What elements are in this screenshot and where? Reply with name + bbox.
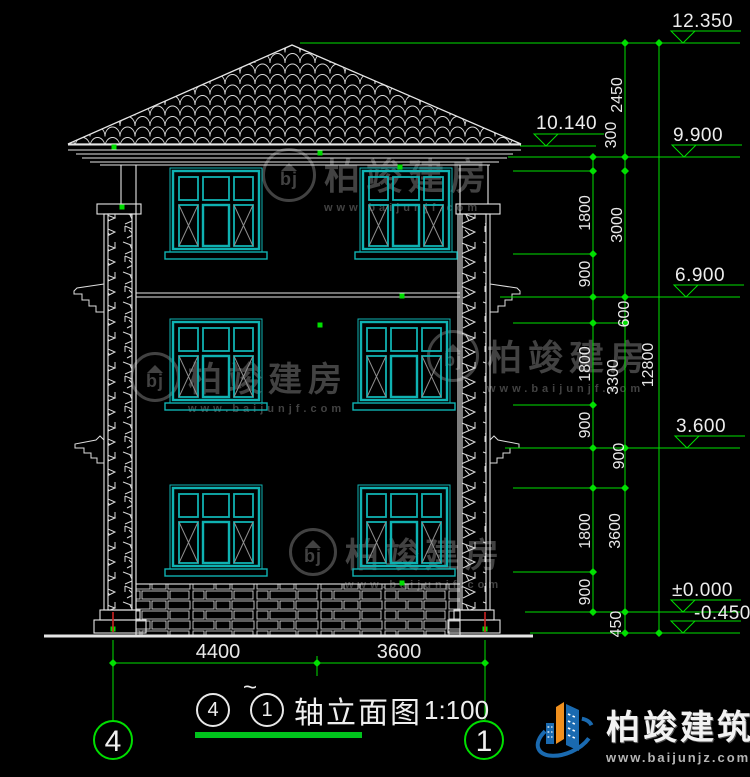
window-sill <box>165 569 267 576</box>
elevation-marker-icon <box>674 285 744 297</box>
grip-point <box>318 323 323 328</box>
elevation-label-ground: ±0.000 <box>672 580 733 601</box>
dim-label-bay-right: 3600 <box>377 641 422 663</box>
drawing-title: 4 ~ 1 轴立面图 1:100 <box>196 688 489 732</box>
dim-labels-mid-chain: 2450 300 3000 600 3300 900 3600 450 <box>603 77 633 637</box>
dim-label: 3300 <box>605 359 622 395</box>
elevation-marker-icon <box>534 134 604 146</box>
dim-label: 900 <box>577 261 594 288</box>
grip-point <box>398 165 403 170</box>
hip-roof <box>60 40 530 165</box>
window <box>165 319 267 410</box>
window-sill <box>353 403 455 410</box>
elevation-label-eave-top: 10.140 <box>536 113 597 134</box>
window-sill <box>165 252 267 259</box>
pilaster-base <box>100 610 140 620</box>
capital <box>97 204 141 214</box>
elevation-marker-icon <box>671 31 741 43</box>
eave-cornice <box>68 145 521 165</box>
dim-label: 2450 <box>609 77 626 113</box>
dim-label: 450 <box>608 611 625 638</box>
title-underline <box>195 732 362 738</box>
dim-label: 300 <box>603 122 620 149</box>
dim-label: 1800 <box>577 195 594 231</box>
grip-point <box>400 294 405 299</box>
window-sill <box>355 252 457 259</box>
pilaster-ornament <box>108 214 132 610</box>
dim-label: 900 <box>611 443 628 470</box>
right-pilaster <box>448 165 500 633</box>
grip-point <box>400 581 405 586</box>
elevation-label-site: -0.450 <box>694 603 750 624</box>
cad-elevation-drawing: bj 柏竣建房 www.baijunjf.com bj 柏竣建房 www.bai… <box>0 0 750 777</box>
dim-label: 1800 <box>577 346 594 382</box>
stone-base <box>136 584 460 636</box>
window-sill <box>353 569 455 576</box>
dim-label: 600 <box>616 301 633 328</box>
window <box>165 485 267 576</box>
dim-label: 3000 <box>609 207 626 243</box>
company-logo: 柏竣建筑 www.baijunjz.com <box>534 697 750 767</box>
elevation-label-eave: 9.900 <box>673 125 723 146</box>
company-url: www.baijunjz.com <box>606 750 750 765</box>
elevation-label-floor2: 3.600 <box>676 416 726 437</box>
grip-points <box>111 145 488 632</box>
window <box>355 168 457 259</box>
elevation-linework: 1800 900 1800 900 1800 900 2450 300 3000… <box>0 0 750 777</box>
dim-label: 900 <box>577 412 594 439</box>
elevation-label-floor3: 6.900 <box>675 265 725 286</box>
company-name: 柏竣建筑 <box>606 700 750 749</box>
elevation-label-ridge: 12.350 <box>672 11 733 32</box>
axis-bubble-label: 4 <box>105 725 122 758</box>
grip-point <box>318 151 323 156</box>
window <box>353 485 455 576</box>
pilaster-ornament <box>462 214 486 610</box>
window-sill <box>165 403 267 410</box>
elevation-labels: 12.350 10.140 9.900 6.900 3.600 ±0.000 -… <box>536 11 750 624</box>
title-text: 轴立面图 <box>294 688 422 732</box>
dim-label: 900 <box>577 579 594 606</box>
window <box>165 168 267 259</box>
title-scale: 1:100 <box>424 695 489 726</box>
grip-point <box>120 205 125 210</box>
windows <box>165 168 457 576</box>
window <box>353 319 455 410</box>
dim-labels-inner-chain: 1800 900 1800 900 1800 900 <box>577 195 594 605</box>
title-axis-circle-start: 4 <box>196 693 230 727</box>
capital <box>456 204 500 214</box>
dim-label-total-height: 12800 <box>640 343 657 388</box>
elevation-marker-icon <box>675 436 745 448</box>
grip-point <box>112 145 117 150</box>
dim-label: 1800 <box>577 513 594 549</box>
dim-label-bay-left: 4400 <box>196 641 241 663</box>
company-logo-icon <box>534 697 600 767</box>
elevation-marker-icon <box>672 145 742 157</box>
corbel-brackets <box>74 284 520 463</box>
dim-label: 3600 <box>607 513 624 549</box>
title-tilde: ~ <box>243 674 257 702</box>
left-pilaster <box>94 165 146 633</box>
